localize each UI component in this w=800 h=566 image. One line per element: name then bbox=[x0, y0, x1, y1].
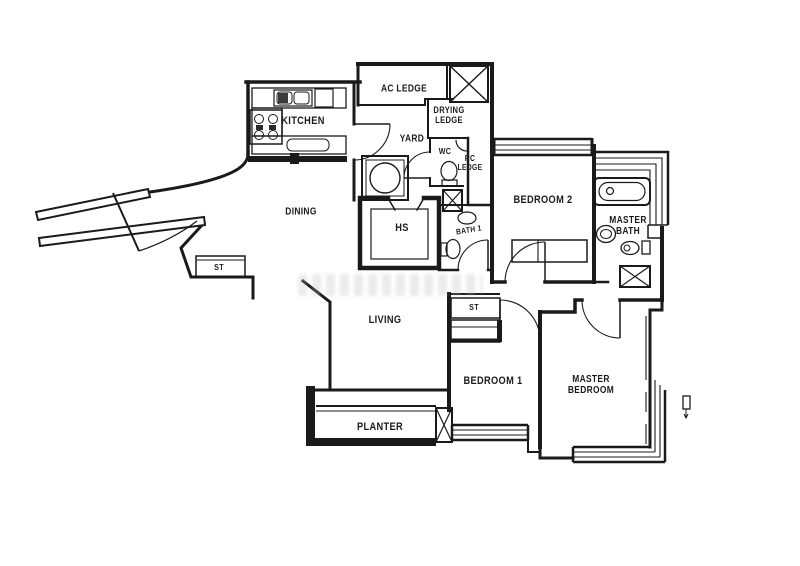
bath1-basin-icon bbox=[458, 212, 476, 224]
bathtub-icon bbox=[594, 178, 650, 205]
room-label-bedroom2: BEDROOM 2 bbox=[514, 194, 573, 206]
column-x-masterbath bbox=[620, 266, 650, 287]
master-bath-line2: BATH bbox=[609, 226, 646, 237]
master-bedroom-line2: BEDROOM bbox=[568, 385, 614, 396]
store-hall-closet bbox=[451, 294, 502, 342]
walls bbox=[150, 64, 662, 458]
room-label-master-bedroom: MASTER BEDROOM bbox=[568, 374, 614, 396]
wc-corner-basin-icon bbox=[456, 140, 467, 151]
room-label-rc-ledge: RC LEDGE bbox=[458, 155, 483, 173]
master-toilet-icon bbox=[621, 241, 650, 255]
planter-walls bbox=[306, 386, 436, 446]
kitchen-counter-top bbox=[252, 88, 346, 108]
bedroom2-wardrobe-icon bbox=[512, 240, 587, 262]
washing-machine-icon bbox=[362, 156, 408, 200]
kitchen-double-sink-icon bbox=[274, 90, 312, 106]
stove-icon bbox=[250, 110, 282, 144]
bath1-toilet-icon bbox=[441, 240, 460, 259]
master-bath-line1: MASTER bbox=[609, 215, 646, 226]
room-label-dining: DINING bbox=[285, 206, 316, 217]
room-label-wc: WC bbox=[439, 147, 452, 157]
floor-plan: KITCHEN AC LEDGE DRYING LEDGE YARD WC RC… bbox=[0, 0, 800, 566]
drying-ledge-line2: LEDGE bbox=[433, 115, 464, 125]
room-label-master-bath: MASTER BATH bbox=[609, 215, 646, 237]
room-label-hs: HS bbox=[395, 222, 409, 234]
wc-toilet-icon bbox=[441, 162, 457, 187]
room-label-yard: YARD bbox=[400, 133, 424, 144]
room-label-store-hall: ST bbox=[469, 303, 479, 313]
column-x-bedroom1 bbox=[436, 408, 452, 442]
room-label-bedroom1: BEDROOM 1 bbox=[464, 375, 523, 387]
balcony-marker-icon bbox=[683, 396, 690, 418]
entrance-walls bbox=[36, 189, 205, 246]
watermark bbox=[298, 274, 483, 296]
room-label-drying-ledge: DRYING LEDGE bbox=[433, 105, 464, 125]
room-label-store-entry: ST bbox=[214, 263, 224, 273]
room-label-kitchen: KITCHEN bbox=[281, 115, 324, 127]
rc-ledge-line2: LEDGE bbox=[458, 164, 483, 173]
room-label-ac-ledge: AC LEDGE bbox=[381, 83, 427, 94]
drying-ledge-line1: DRYING bbox=[433, 105, 464, 115]
column-x-yard bbox=[443, 190, 462, 211]
room-label-planter: PLANTER bbox=[357, 421, 403, 433]
kitchen-appliance bbox=[315, 89, 333, 107]
master-bedroom-line1: MASTER bbox=[568, 374, 614, 385]
column-x-drying bbox=[450, 66, 488, 102]
room-label-living: LIVING bbox=[369, 314, 402, 326]
